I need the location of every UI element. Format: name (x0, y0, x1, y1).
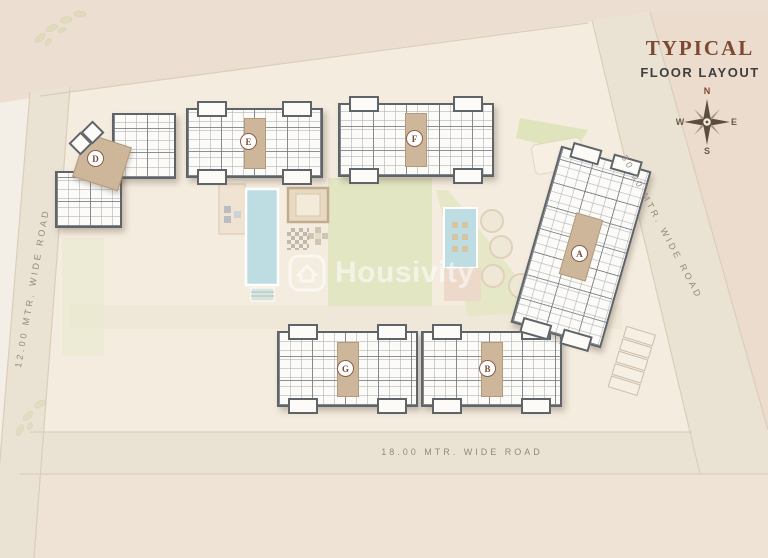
building-wing (377, 324, 407, 340)
building-wing (282, 169, 312, 185)
building-wing (377, 398, 407, 414)
water-feature (444, 208, 481, 301)
building-label-b: B (479, 360, 496, 377)
header: TYPICAL FLOOR LAYOUT (634, 36, 766, 80)
building-label-d: D (87, 150, 104, 167)
checker-plaza (287, 228, 309, 250)
building-label-f: F (406, 130, 423, 147)
compass-east-label: E (731, 117, 737, 127)
road-label-18m: 18.00 MTR. WIDE ROAD (352, 447, 572, 457)
utility-block (219, 184, 245, 234)
building-wing (349, 168, 379, 184)
west-lawn (62, 238, 104, 356)
building-label-e: E (240, 133, 257, 150)
outer-ground-bottom (0, 474, 768, 558)
building-wing (288, 398, 318, 414)
page-title: TYPICAL (634, 36, 766, 61)
compass-south-label: S (704, 146, 710, 156)
central-lawn (328, 178, 432, 306)
compass-star (684, 99, 730, 145)
building-wing (197, 169, 227, 185)
building-wing (453, 96, 483, 112)
building-label-a: A (571, 245, 588, 262)
patio (444, 268, 481, 301)
building-wing (521, 398, 551, 414)
building-wing (282, 101, 312, 117)
site-map-base (0, 0, 768, 558)
compass-west-label: W (676, 117, 685, 127)
building-wing (453, 168, 483, 184)
building-wing (288, 324, 318, 340)
page-subtitle: FLOOR LAYOUT (634, 65, 766, 80)
building-wing (432, 398, 462, 414)
building-wing (432, 324, 462, 340)
building-wing (349, 96, 379, 112)
site-plan: D E F A G B 12.00 MTR. WIDE ROAD 30.00 M… (0, 0, 768, 558)
swimming-pool (246, 189, 278, 301)
building-label-g: G (337, 360, 354, 377)
building-wing (197, 101, 227, 117)
compass-icon: N E S W (676, 84, 738, 156)
pavilion (288, 188, 328, 222)
compass-north-label: N (704, 86, 711, 96)
